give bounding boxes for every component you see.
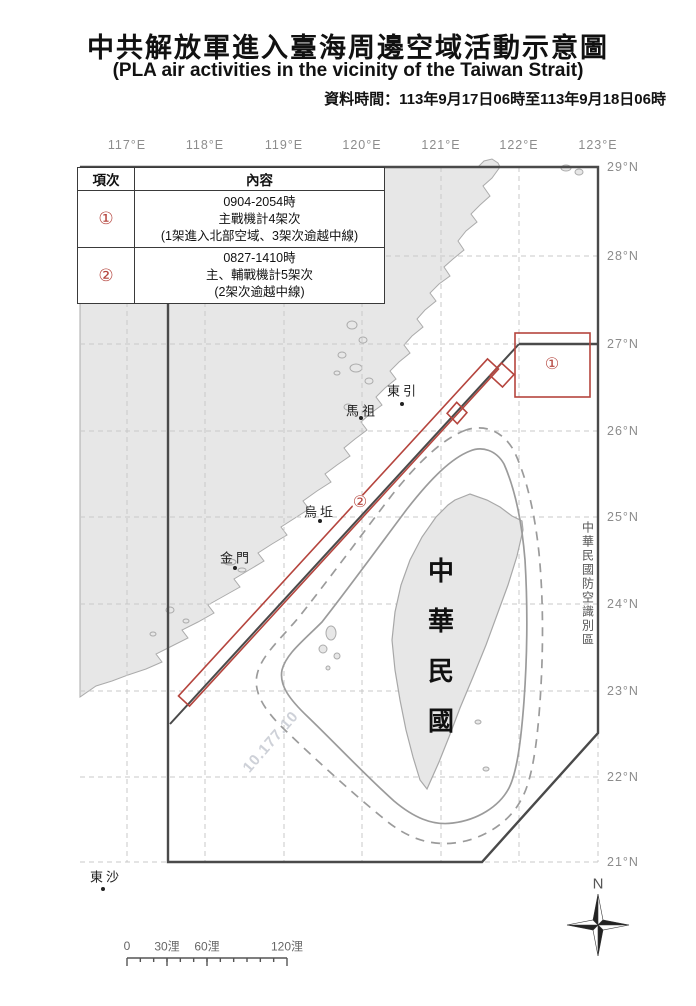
lon-label: 122°E bbox=[499, 138, 538, 152]
mazu-dot bbox=[359, 416, 363, 420]
dongyin-dot bbox=[400, 402, 404, 406]
scale-bar-label: 0 bbox=[124, 939, 131, 953]
green-orchid-islands bbox=[475, 720, 489, 771]
row2-line3: (2架次逾越中線) bbox=[214, 284, 304, 301]
scale-bar-label: 30浬 bbox=[154, 938, 179, 955]
table-row2-number: ② bbox=[78, 248, 135, 303]
marker-2: ② bbox=[352, 495, 368, 511]
penghu-islands bbox=[319, 626, 340, 670]
label-dongyin: 東引 bbox=[387, 381, 419, 400]
activity-table: 項次 內容 ① 0904-2054時 主戰機計4架次 (1架進入北部空域、3架次… bbox=[77, 167, 385, 304]
table-header-content: 內容 bbox=[135, 168, 384, 191]
scale-bar-label: 120浬 bbox=[271, 938, 303, 955]
label-dongsha: 東沙 bbox=[90, 867, 122, 886]
row1-line1: 0904-2054時 bbox=[223, 194, 295, 211]
wuqiu-dot bbox=[318, 519, 322, 523]
compass-rose-icon bbox=[567, 894, 629, 956]
label-roc-adiz: 中華民國防空識別區 bbox=[580, 521, 597, 647]
row1-line2: 主戰機計4架次 bbox=[219, 211, 301, 228]
table-row1-content: 0904-2054時 主戰機計4架次 (1架進入北部空域、3架次逾越中線) bbox=[135, 191, 384, 248]
lat-label: 23°N bbox=[607, 684, 639, 698]
row1-line3: (1架進入北部空域、3架次逾越中線) bbox=[161, 228, 358, 245]
label-wuqiu: 烏坵 bbox=[304, 502, 336, 521]
label-kinmen: 金門 bbox=[220, 548, 252, 567]
lat-label: 24°N bbox=[607, 597, 639, 611]
taiwan-char-2: 華 bbox=[428, 601, 454, 638]
table-row2-content: 0827-1410時 主、輔戰機計5架次 (2架次逾越中線) bbox=[135, 248, 384, 303]
scale-bar bbox=[127, 958, 287, 966]
lon-label: 118°E bbox=[186, 138, 224, 152]
taiwan-char-1: 中 bbox=[428, 551, 454, 588]
lon-label: 119°E bbox=[265, 138, 303, 152]
kinmen-dot bbox=[233, 566, 237, 570]
compass-north-label: N bbox=[593, 876, 604, 893]
row2-line2: 主、輔戰機計5架次 bbox=[206, 267, 313, 284]
lat-label: 22°N bbox=[607, 770, 639, 784]
dongsha-dot bbox=[101, 887, 105, 891]
lat-label: 21°N bbox=[607, 855, 639, 869]
table-row1-number: ① bbox=[78, 191, 135, 248]
pla-air-activity-bulletin: 中共解放軍進入臺海周邊空域活動示意圖 (PLA air activities i… bbox=[0, 0, 696, 1006]
lat-label: 26°N bbox=[607, 424, 639, 438]
taiwan-char-3: 民 bbox=[428, 651, 454, 688]
label-republic-of-china: 中 華 民 國 bbox=[428, 551, 454, 738]
lat-label: 29°N bbox=[607, 160, 639, 174]
lat-label: 28°N bbox=[607, 249, 639, 263]
scale-bar-label: 60浬 bbox=[194, 938, 219, 955]
lat-label: 27°N bbox=[607, 337, 639, 351]
taiwan-island bbox=[392, 494, 523, 789]
lon-label: 123°E bbox=[578, 138, 617, 152]
lon-label: 121°E bbox=[421, 138, 460, 152]
table-header-item: 項次 bbox=[78, 168, 135, 191]
row2-line1: 0827-1410時 bbox=[223, 250, 295, 267]
lat-label: 25°N bbox=[607, 510, 639, 524]
taiwan-char-4: 國 bbox=[428, 701, 454, 738]
lon-label: 120°E bbox=[342, 138, 381, 152]
marker-1: ① bbox=[545, 357, 559, 373]
lon-label: 117°E bbox=[108, 138, 146, 152]
